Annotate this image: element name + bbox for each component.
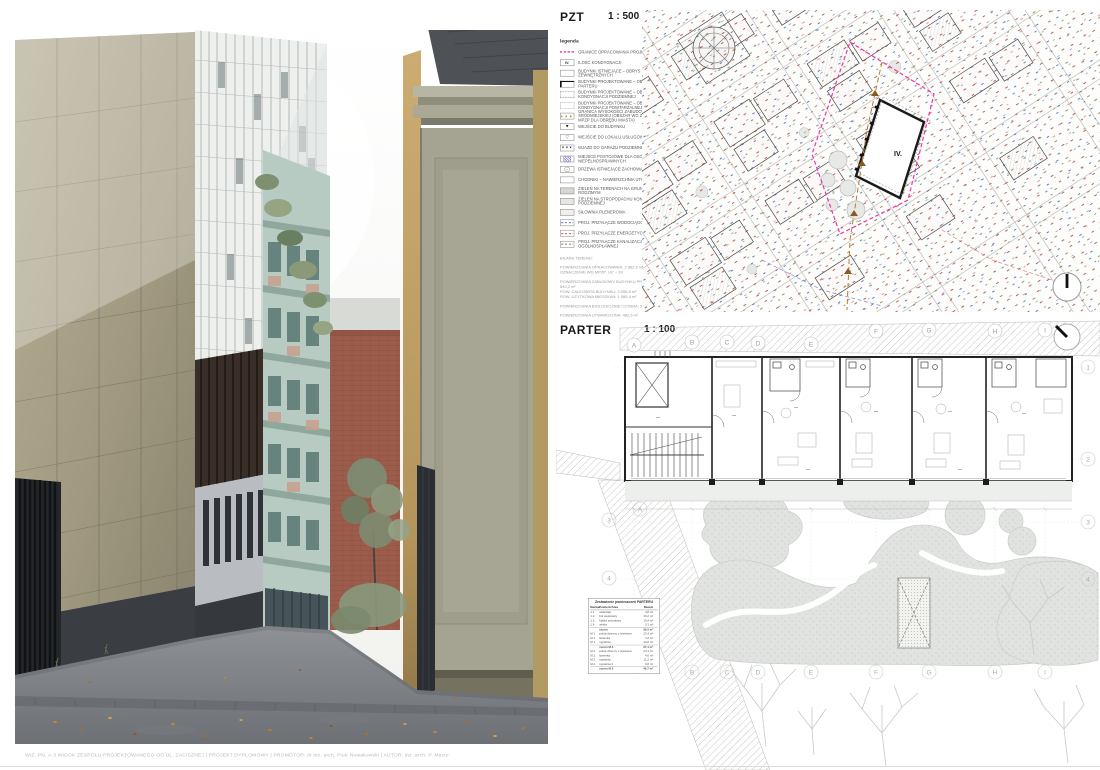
exterior-render <box>15 30 548 744</box>
svg-text:C: C <box>725 670 730 677</box>
pzt-title: PZT <box>560 10 584 24</box>
site-plan-panel: PZT 1 : 500 legenda GRANICE OPRACOWANIA … <box>556 8 1100 312</box>
table-title: Zestawienie pomieszczeń PARTERU <box>590 600 658 604</box>
gate-grille <box>15 478 61 682</box>
greenery-ground-icon <box>560 187 574 194</box>
table-row: M.1sypialnia10,8 m² <box>590 640 658 644</box>
pavement-icon <box>560 177 574 184</box>
designed-upper-icon <box>560 102 574 109</box>
room-schedule-table: Zestawienie pomieszczeń PARTERU Nazwa Po… <box>588 598 660 673</box>
greenery-roof-icon <box>560 198 574 205</box>
svg-text:G: G <box>926 670 931 677</box>
presentation-board: PZT 1 : 500 legenda GRANICE OPRACOWANIA … <box>0 0 1100 770</box>
pzt-scale: 1 : 500 <box>608 11 639 22</box>
cornice <box>413 86 548 125</box>
svg-text:C: C <box>725 340 730 347</box>
table-row: M.2sypialnia 29,8 m² <box>590 662 658 666</box>
svg-text:H: H <box>993 329 998 336</box>
storeys-label: IV. <box>894 151 902 158</box>
boundary-line-icon <box>560 49 574 56</box>
terrace <box>625 479 1072 501</box>
classical-building <box>403 30 548 744</box>
svg-text:B: B <box>690 670 694 677</box>
green-facade-building <box>255 150 333 644</box>
svg-text:E: E <box>809 670 814 677</box>
table-row: razem M.249,7 m² <box>590 666 658 671</box>
building-entrance-icon: ▼ <box>560 123 574 130</box>
svg-text:E: E <box>809 342 814 349</box>
svg-text:B: B <box>690 340 694 347</box>
outdoor-gym-icon <box>560 209 574 216</box>
garden-deck <box>898 578 930 648</box>
svg-text:I: I <box>1044 670 1046 677</box>
table-row: 1.4winda3,1 m² <box>590 623 658 627</box>
building-plan <box>625 351 1072 482</box>
svg-text:H: H <box>993 670 998 677</box>
svg-text:D: D <box>756 341 761 348</box>
svg-text:A: A <box>632 343 637 350</box>
garage-ramp-icon: ▼▼▼ <box>560 145 574 152</box>
north-arrow-icon <box>1053 273 1081 301</box>
svg-text:4: 4 <box>1086 577 1090 584</box>
storeys-box-icon: IV. <box>560 59 574 66</box>
svg-text:4: 4 <box>607 576 611 583</box>
olive-panel-wall <box>15 30 195 682</box>
footer-caption: WIZ. PN. A-3 WIDOK ZESPOŁU PROJEKTOWANEG… <box>25 752 583 758</box>
height-limit-line-icon <box>560 113 574 120</box>
designed-basement-icon <box>560 91 574 98</box>
svg-text:F: F <box>874 329 878 336</box>
water-connection-icon <box>560 219 574 226</box>
svg-text:1: 1 <box>1086 365 1090 372</box>
floor-plan-drawing: A B C D E F G H I A B C <box>556 315 1100 770</box>
svg-text:F: F <box>874 670 878 677</box>
plan-north-arrow-icon <box>1054 324 1080 350</box>
svg-text:A: A <box>638 507 643 514</box>
svg-text:G: G <box>926 328 931 335</box>
power-connection-icon <box>560 230 574 237</box>
existing-building-icon <box>560 70 574 77</box>
sewer-connection-icon <box>560 241 574 248</box>
svg-text:I: I <box>1044 328 1046 335</box>
svg-text:2: 2 <box>1086 457 1090 464</box>
disabled-parking-icon <box>560 155 574 162</box>
metal-gate <box>417 465 435 702</box>
floor-plan-panel: PARTER 1 : 100 <box>556 315 1100 770</box>
site-plan-map: IV. <box>642 10 1100 312</box>
service-entrance-icon: ▽ <box>560 134 574 141</box>
garden <box>691 486 1098 666</box>
svg-text:3: 3 <box>607 518 611 525</box>
existing-tree-icon <box>560 166 574 173</box>
new-building-base <box>195 345 267 646</box>
footer-divider <box>0 766 1100 767</box>
svg-text:D: D <box>756 670 761 677</box>
svg-text:3: 3 <box>1086 520 1090 527</box>
designed-groundfloor-icon <box>560 81 574 88</box>
